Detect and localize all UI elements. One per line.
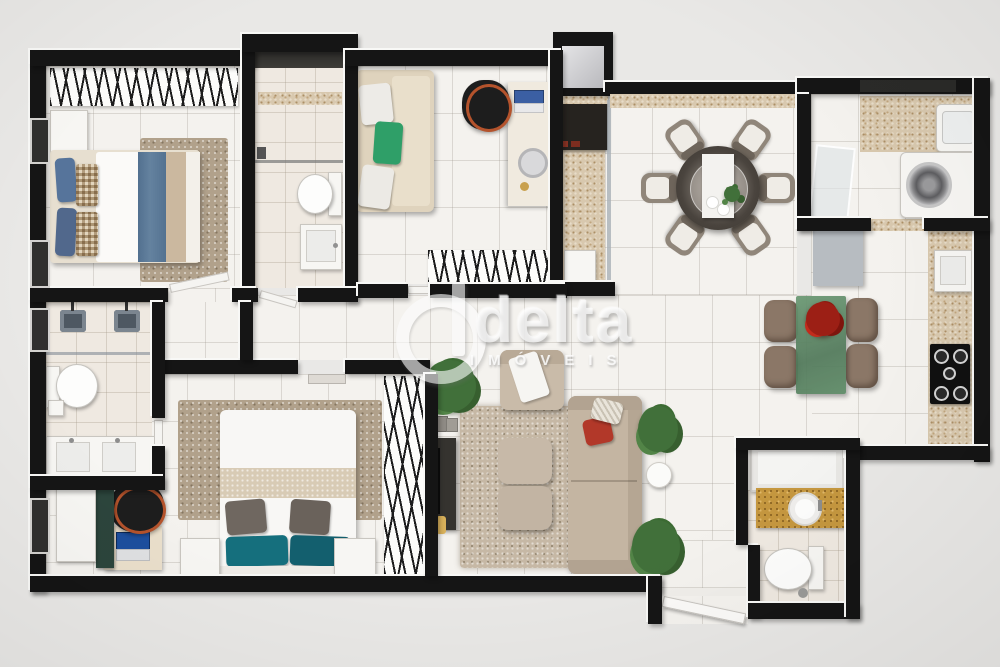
dining-chair-back [759,175,767,201]
wall-segment [242,50,255,302]
office-laptop-screen [514,90,544,104]
shower-glass-rail [255,160,345,163]
island-stool [764,300,798,342]
floor-plan-canvas: delta IMÓVEIS [0,0,1000,667]
office-green-pillow [373,121,404,165]
bed-1-blue-pillow [54,157,77,202]
wall-segment [158,360,298,374]
laundry-passage-floor [871,219,924,231]
nightstand [334,538,376,576]
burner-icon [953,386,968,401]
living-sofa-armrest [568,560,642,574]
office-laptop-base [514,103,544,113]
wall-segment [345,50,358,302]
entry-door-sill [658,588,748,596]
sink-1-basin [306,230,336,262]
wall-segment [240,302,253,360]
bed-1-blue-blanket [138,152,168,262]
office-stick-bench [428,250,550,286]
dining-plant-icon [724,186,740,202]
office-white-pillow [357,164,395,210]
wall-segment [845,446,990,460]
watermark-brand: delta [474,288,633,352]
duct-shaft-box [562,46,604,88]
toilet-paper-holder [48,400,64,416]
laundry-window [860,80,956,92]
trash-bin-icon [798,588,808,598]
living-sofa-seam [571,480,637,482]
wall-segment [605,82,805,94]
burner-icon [934,349,949,364]
wall-segment [736,438,860,450]
living-side-table [646,462,672,488]
washing-machine-door [906,162,952,208]
kitchen-gray-cabinet [813,226,863,286]
window [30,240,50,288]
wall-segment [242,34,358,52]
wall-segment [30,576,662,592]
balcony-service-box [564,250,596,284]
wall-segment [232,288,258,302]
wall-segment [736,440,748,545]
cooktop [930,344,970,404]
dining-chair-cushion [646,177,670,199]
shower-head-icon [60,310,86,332]
office-white-pillow [358,82,394,125]
office-desk-cup [520,182,529,191]
master-bed-beige-band [220,468,356,498]
wall-segment [425,374,438,576]
burner-icon [943,367,956,380]
green-cabinet [96,478,114,568]
burner-icon [934,386,949,401]
plant-icon [632,520,680,574]
island-stool [764,346,798,388]
master-office-chair-strap [114,486,166,534]
dining-chair [757,173,795,203]
vanity-sink-basin [56,442,90,472]
dining-plate [717,203,730,216]
vanity-sink-basin [102,442,136,472]
office-door-leaf [408,286,432,294]
picture-frame-icon [446,418,458,432]
office-chair-strap [466,84,512,132]
wall-segment [924,218,990,231]
bed-1-duvet [96,152,140,262]
balcony-glass-rail [607,100,611,282]
watermark-logo-circle [396,294,486,384]
dining-window-sill [610,94,802,108]
red-flowers [806,302,840,336]
master-gray-pillow [225,498,268,535]
burner-icon [953,349,968,364]
shower-closet-box [750,444,844,492]
watermark-logo-bar [452,282,465,356]
nightstand [180,538,220,576]
laundry-glass-door [808,144,856,224]
island-stool [846,344,878,388]
ensuite-door-leaf [154,420,163,449]
master-teal-pillow [225,535,288,567]
dining-chair [641,173,679,203]
closet-rod-shelf [258,92,342,105]
master-laptop-screen [116,532,150,550]
wall-segment [358,284,408,298]
white-chest [56,480,96,562]
wall-segment [797,94,811,230]
bed-1-foot-throw [186,152,200,262]
toilet-3-bowl [764,548,812,590]
master-stick-panel [384,376,426,574]
wall-segment [846,440,860,619]
window [30,308,50,352]
vessel-sink [788,492,822,526]
wall-segment [345,50,567,66]
watermark-subtitle: IMÓVEIS [470,352,631,369]
wall-segment [30,50,255,66]
kitchen-sink-basin [940,256,966,285]
laundry-tank-basin [942,111,974,144]
wall-segment [298,288,358,302]
master-laptop-base [116,549,150,561]
sink-1-faucet [333,243,338,248]
dining-chair-cushion [766,177,790,199]
living-pouf [498,486,552,530]
master-gray-pillow [289,499,331,536]
wall-segment [152,302,165,418]
window [30,498,50,554]
grill-bricks [571,141,580,147]
plant-icon [638,406,678,452]
wall-segment [30,476,165,490]
bed-1-beige-blanket [166,152,188,262]
bed-1-checkered-pillow [76,164,98,206]
master-door-leaf [308,374,346,384]
shower-head-icon [257,147,266,159]
bed-1-blue-pillow [55,208,77,257]
shower-glass-divider [46,352,152,355]
wall-segment [648,576,662,624]
wall-segment [30,288,168,302]
wall-segment [550,50,563,296]
bed-1-checkered-pillow [76,212,98,256]
wall-segment [974,78,990,462]
shower-head-icon [114,310,140,332]
wall-segment [748,603,860,619]
island-stool [846,298,878,342]
wall-segment [797,218,871,231]
living-pouf [498,438,552,484]
window [30,118,50,164]
vanity-faucet [69,438,74,443]
stick-headboard-panel [50,68,238,106]
vanity-faucet [115,438,120,443]
toilet-1-bowl [297,174,333,214]
vessel-faucet [818,500,822,511]
office-desk-mirror [518,148,548,178]
